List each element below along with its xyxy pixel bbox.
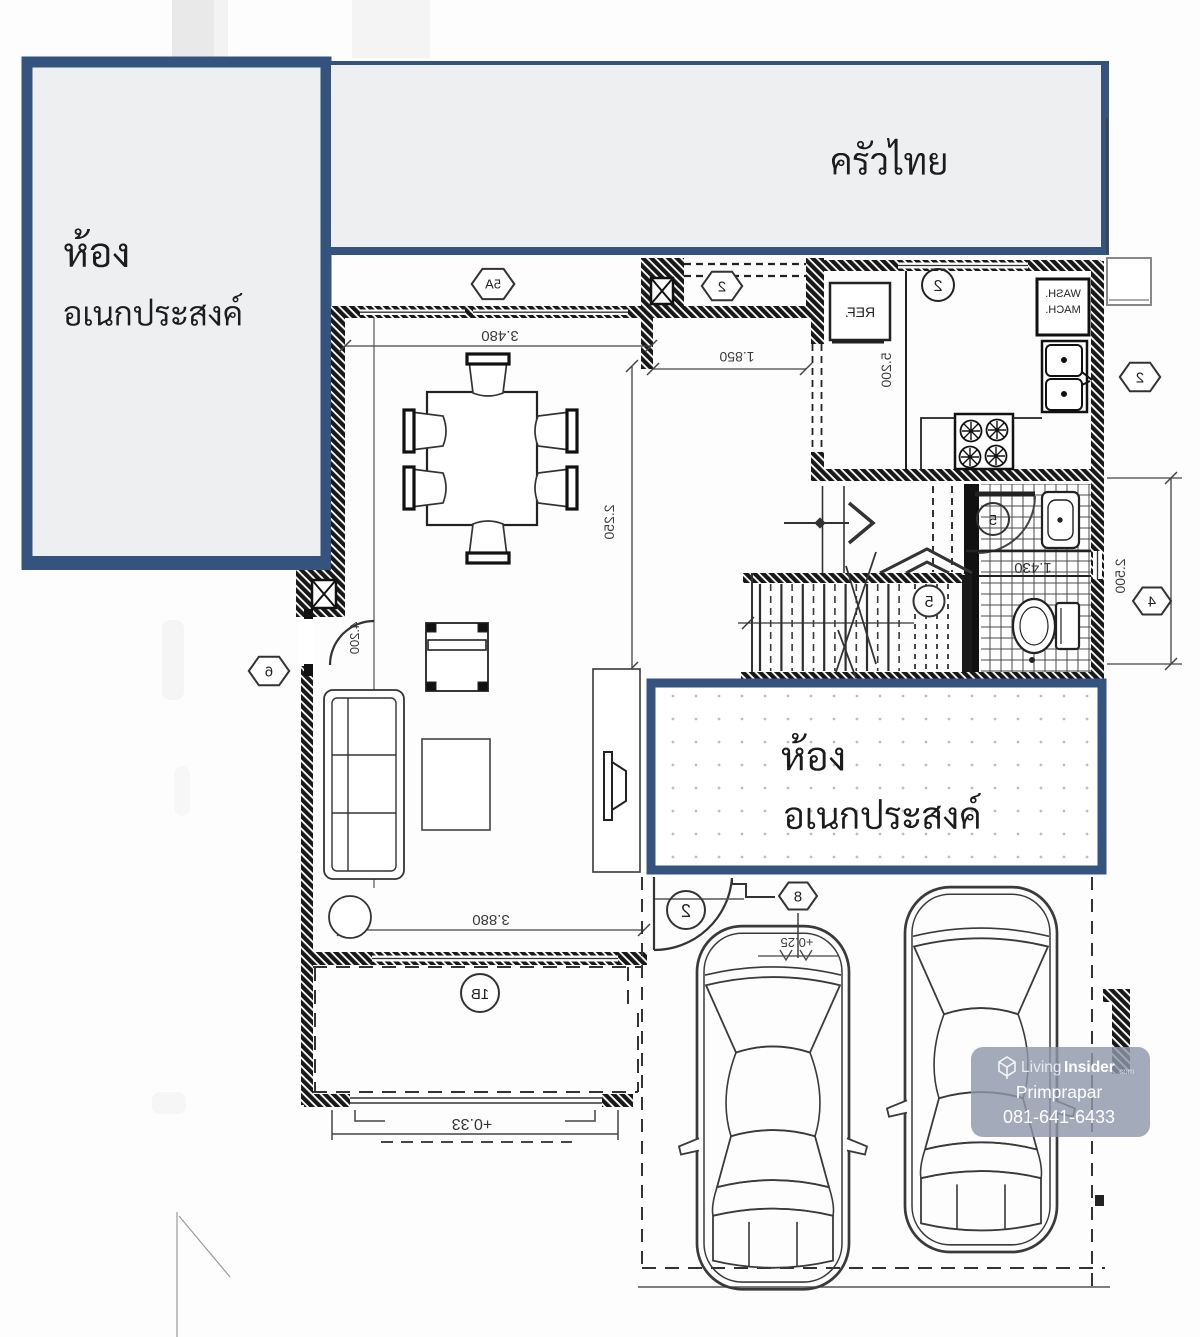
svg-text:+0.33: +0.33: [452, 1115, 493, 1132]
svg-text:2.500: 2.500: [1112, 558, 1128, 593]
svg-text:5.200: 5.200: [878, 352, 894, 387]
svg-text:6: 6: [265, 663, 273, 680]
svg-text:3.480: 3.480: [481, 327, 519, 344]
svg-text:REF.: REF.: [845, 304, 875, 320]
svg-text:+0.25: +0.25: [781, 935, 814, 950]
svg-text:1B: 1B: [471, 986, 489, 1003]
svg-text:1.850: 1.850: [719, 349, 754, 365]
svg-text:Insider: Insider: [1064, 1059, 1115, 1076]
svg-text:.com: .com: [1117, 1067, 1135, 1076]
svg-text:2: 2: [681, 901, 691, 921]
svg-text:Living: Living: [1021, 1059, 1062, 1076]
svg-text:2: 2: [1136, 369, 1144, 386]
svg-text:4: 4: [1148, 593, 1156, 610]
svg-text:2: 2: [718, 278, 726, 295]
svg-text:2: 2: [933, 278, 942, 295]
svg-text:5: 5: [924, 594, 933, 611]
svg-text:8: 8: [794, 888, 802, 905]
svg-text:2.250: 2.250: [601, 504, 617, 539]
svg-text:081-641-6433: 081-641-6433: [1003, 1107, 1115, 1127]
svg-text:WASH.: WASH.: [1045, 288, 1081, 300]
svg-text:5: 5: [989, 512, 997, 529]
svg-text:Primprapar: Primprapar: [1016, 1082, 1103, 1102]
svg-text:1.430: 1.430: [1014, 559, 1052, 576]
svg-text:5A: 5A: [485, 277, 501, 292]
svg-text:3.880: 3.880: [472, 911, 510, 928]
svg-text:MACH.: MACH.: [1045, 304, 1080, 316]
